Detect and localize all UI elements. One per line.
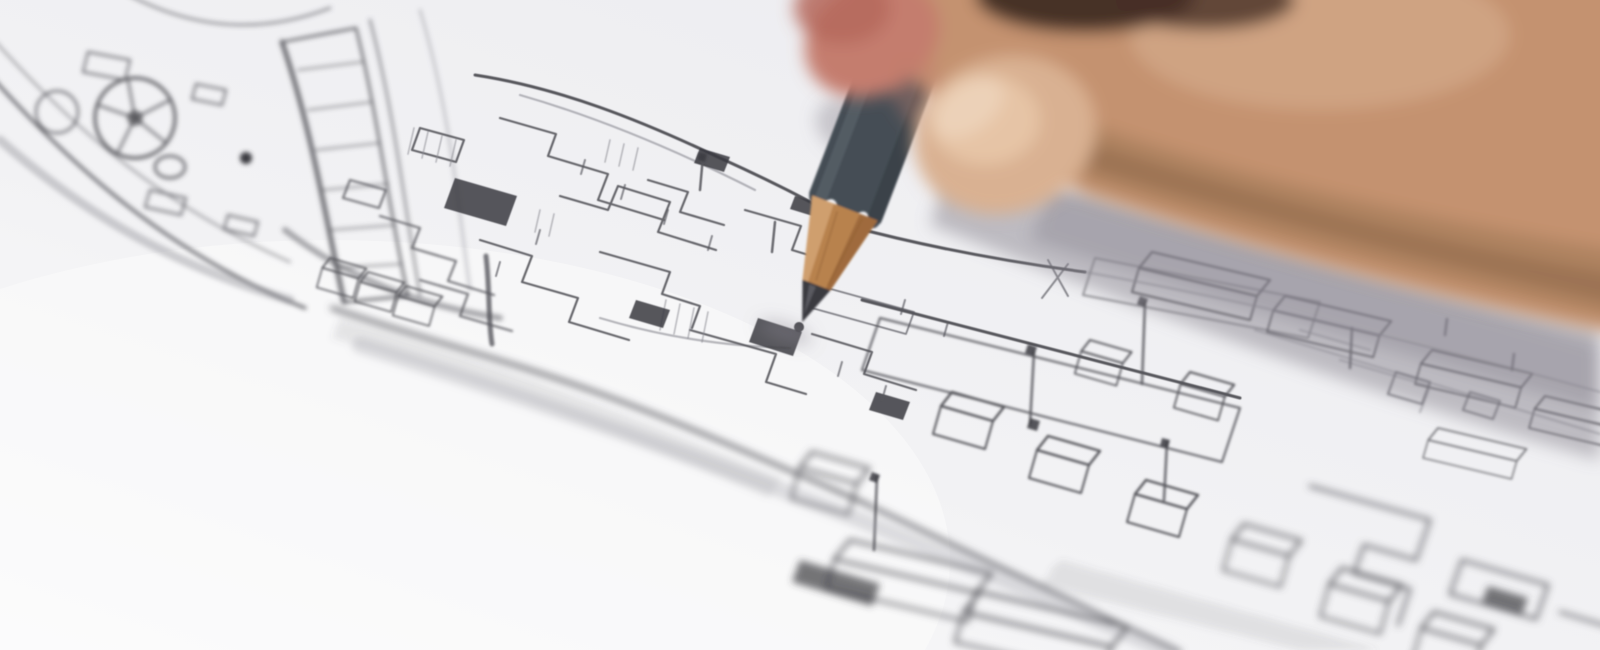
photo-stage	[0, 0, 1600, 650]
module-dark-dot	[240, 152, 252, 164]
turbine-hub	[127, 110, 143, 126]
photo-canvas	[0, 0, 1600, 650]
